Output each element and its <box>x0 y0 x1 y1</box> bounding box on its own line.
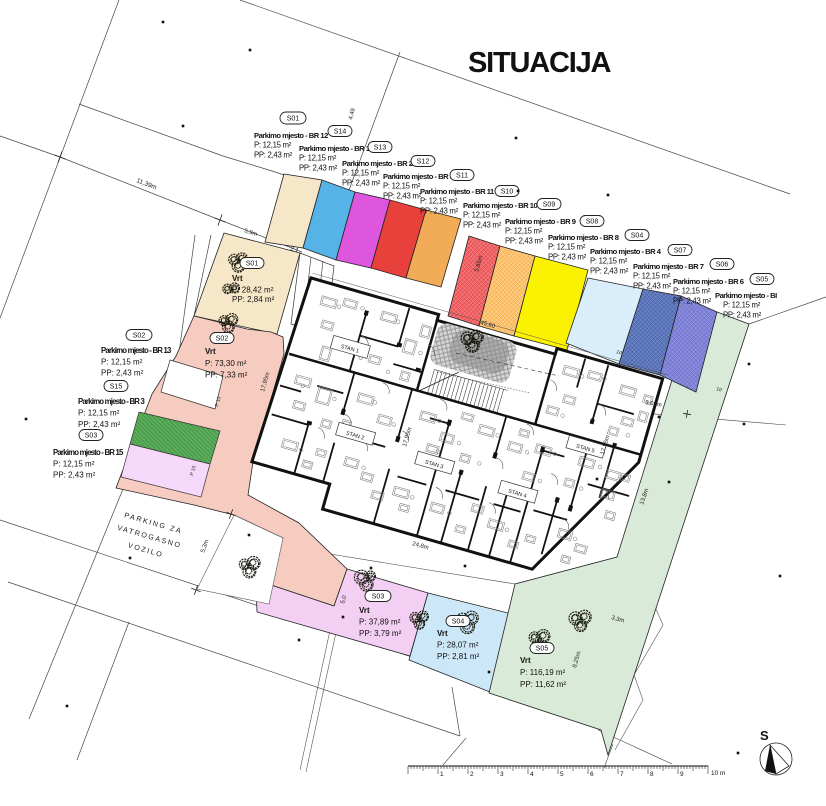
svg-text:S08: S08 <box>586 218 599 225</box>
svg-text:Vrt: Vrt <box>520 656 531 665</box>
svg-text:S01: S01 <box>246 260 259 267</box>
svg-text:SITUACIJA: SITUACIJA <box>468 47 612 79</box>
svg-text:Vrt: Vrt <box>205 347 216 356</box>
svg-text:P: 28,07 m²: P: 28,07 m² <box>437 641 479 650</box>
svg-text:10 m: 10 m <box>711 770 725 777</box>
svg-text:P: 12,15 m²: P: 12,15 m² <box>342 169 380 178</box>
svg-text:P: 12,15 m²: P: 12,15 m² <box>53 460 95 469</box>
svg-text:S05: S05 <box>536 645 549 652</box>
svg-text:Parkirno mjesto - BR 2: Parkirno mjesto - BR 2 <box>342 159 413 168</box>
svg-text:Parkirno mjesto - BR 14: Parkirno mjesto - BR 14 <box>299 144 374 153</box>
svg-text:PP: 2,43 m²: PP: 2,43 m² <box>53 471 96 480</box>
svg-text:S02: S02 <box>133 332 146 339</box>
svg-text:Parkirno mjesto - BR 13: Parkirno mjesto - BR 13 <box>101 346 172 355</box>
svg-text:8: 8 <box>650 771 654 778</box>
svg-text:S04: S04 <box>452 618 465 625</box>
svg-text:Parkirno mjesto - BR 8: Parkirno mjesto - BR 8 <box>548 233 619 242</box>
svg-text:S07: S07 <box>674 247 687 254</box>
svg-text:S03: S03 <box>372 593 385 600</box>
svg-text:S05: S05 <box>756 276 769 283</box>
svg-text:3: 3 <box>500 771 504 778</box>
svg-text:P: 12,15 m²: P: 12,15 m² <box>633 272 671 281</box>
svg-text:Parkirno mjesto - BR 9: Parkirno mjesto - BR 9 <box>505 217 576 226</box>
svg-text:Vrt: Vrt <box>232 274 243 283</box>
svg-text:PP: 2,43 m²: PP: 2,43 m² <box>78 420 121 429</box>
svg-text:PP: 2,43 m²: PP: 2,43 m² <box>299 164 338 173</box>
svg-text:PP: 2,43 m²: PP: 2,43 m² <box>463 221 502 230</box>
svg-text:S10: S10 <box>501 188 514 195</box>
svg-text:P: 116,19 m²: P: 116,19 m² <box>520 668 566 677</box>
svg-text:S12: S12 <box>417 158 430 165</box>
svg-text:P: 12,15 m²: P: 12,15 m² <box>299 154 337 163</box>
svg-text:Parkirno mjesto - BR 4: Parkirno mjesto - BR 4 <box>590 247 662 256</box>
svg-text:5: 5 <box>560 771 564 778</box>
svg-text:PP: 2,43 m²: PP: 2,43 m² <box>420 207 459 216</box>
svg-text:PP: 7,33 m²: PP: 7,33 m² <box>205 371 248 380</box>
svg-text:PP: 2,43 m²: PP: 2,43 m² <box>254 151 293 160</box>
svg-text:P: 12,15 m²: P: 12,15 m² <box>420 197 458 206</box>
svg-text:S: S <box>760 728 769 743</box>
svg-text:S02: S02 <box>216 335 229 342</box>
svg-text:P: 73,30 m²: P: 73,30 m² <box>205 359 247 368</box>
svg-text:Parkimo mjesto - BR 12: Parkimo mjesto - BR 12 <box>254 131 328 140</box>
svg-text:PP: 2,43 m²: PP: 2,43 m² <box>505 237 544 246</box>
svg-text:PP: 2,43 m²: PP: 2,43 m² <box>590 267 629 276</box>
svg-text:Vrt: Vrt <box>437 629 448 638</box>
svg-text:PP: 11,62 m²: PP: 11,62 m² <box>520 680 566 689</box>
svg-text:PP: 2,43 m²: PP: 2,43 m² <box>633 282 672 291</box>
svg-text:P: 12,15 m²: P: 12,15 m² <box>505 227 543 236</box>
svg-text:PP: 2,43 m²: PP: 2,43 m² <box>101 369 144 378</box>
svg-text:P: 37,89 m²: P: 37,89 m² <box>359 618 401 627</box>
svg-text:S13: S13 <box>374 144 387 151</box>
svg-text:PP: 2,43 m²: PP: 2,43 m² <box>723 311 762 320</box>
svg-text:Parkirno mjesto - BR 3: Parkirno mjesto - BR 3 <box>78 397 145 406</box>
svg-text:Parkirno mjesto - BI: Parkirno mjesto - BI <box>715 291 777 300</box>
svg-text:P: 12,15 m²: P: 12,15 m² <box>101 358 143 367</box>
svg-text:S03: S03 <box>85 432 98 439</box>
svg-text:P: 12,15 m²: P: 12,15 m² <box>548 243 586 252</box>
svg-text:Parkirno mjesto - BR 6: Parkirno mjesto - BR 6 <box>673 277 744 286</box>
svg-text:7: 7 <box>620 771 624 778</box>
svg-text:Vrt: Vrt <box>359 606 370 615</box>
svg-text:Parkirno mjesto - BR 10: Parkirno mjesto - BR 10 <box>463 201 537 210</box>
svg-text:6: 6 <box>590 771 594 778</box>
svg-text:Parkirno mjesto - BR 5: Parkirno mjesto - BR 5 <box>383 172 455 181</box>
svg-text:PP: 2,43 m²: PP: 2,43 m² <box>383 192 422 201</box>
svg-text:S04: S04 <box>631 232 644 239</box>
svg-text:P: 12,15 m²: P: 12,15 m² <box>590 257 628 266</box>
svg-text:P: 28,42 m²: P: 28,42 m² <box>232 286 274 295</box>
svg-text:1: 1 <box>440 771 444 778</box>
svg-text:2: 2 <box>470 771 474 778</box>
svg-text:P: 12,15 m²: P: 12,15 m² <box>723 301 761 310</box>
svg-text:P: 12,15 m²: P: 12,15 m² <box>383 182 421 191</box>
svg-text:P: 12,15 m²: P: 12,15 m² <box>254 141 292 150</box>
svg-text:S09: S09 <box>543 201 556 208</box>
svg-text:P: 12,15 m²: P: 12,15 m² <box>673 287 711 296</box>
svg-text:S01: S01 <box>287 115 300 122</box>
svg-text:4: 4 <box>530 771 534 778</box>
svg-text:PP: 2,43 m²: PP: 2,43 m² <box>673 297 712 306</box>
svg-text:PP: 2,43 m²: PP: 2,43 m² <box>548 253 587 262</box>
svg-text:S11: S11 <box>456 172 468 179</box>
svg-text:PP: 2,43 m²: PP: 2,43 m² <box>342 179 381 188</box>
svg-text:Parkirno mjesto - BR 15: Parkirno mjesto - BR 15 <box>53 448 124 457</box>
svg-text:S15: S15 <box>110 383 123 390</box>
svg-text:S06: S06 <box>716 261 729 268</box>
svg-text:Parkirno mjesto - BR 7: Parkirno mjesto - BR 7 <box>633 262 704 271</box>
svg-text:P: 12,15 m²: P: 12,15 m² <box>78 409 120 418</box>
svg-text:Parkirno mjesto - BR 11: Parkirno mjesto - BR 11 <box>420 187 495 196</box>
svg-text:PP: 2,84 m²: PP: 2,84 m² <box>232 295 275 304</box>
svg-text:S14: S14 <box>334 128 347 135</box>
svg-text:PP: 2,81 m²: PP: 2,81 m² <box>437 652 480 661</box>
svg-text:9: 9 <box>680 771 684 778</box>
svg-text:P: 12,15 m²: P: 12,15 m² <box>463 211 501 220</box>
svg-text:PP: 3,79 m²: PP: 3,79 m² <box>359 629 402 638</box>
